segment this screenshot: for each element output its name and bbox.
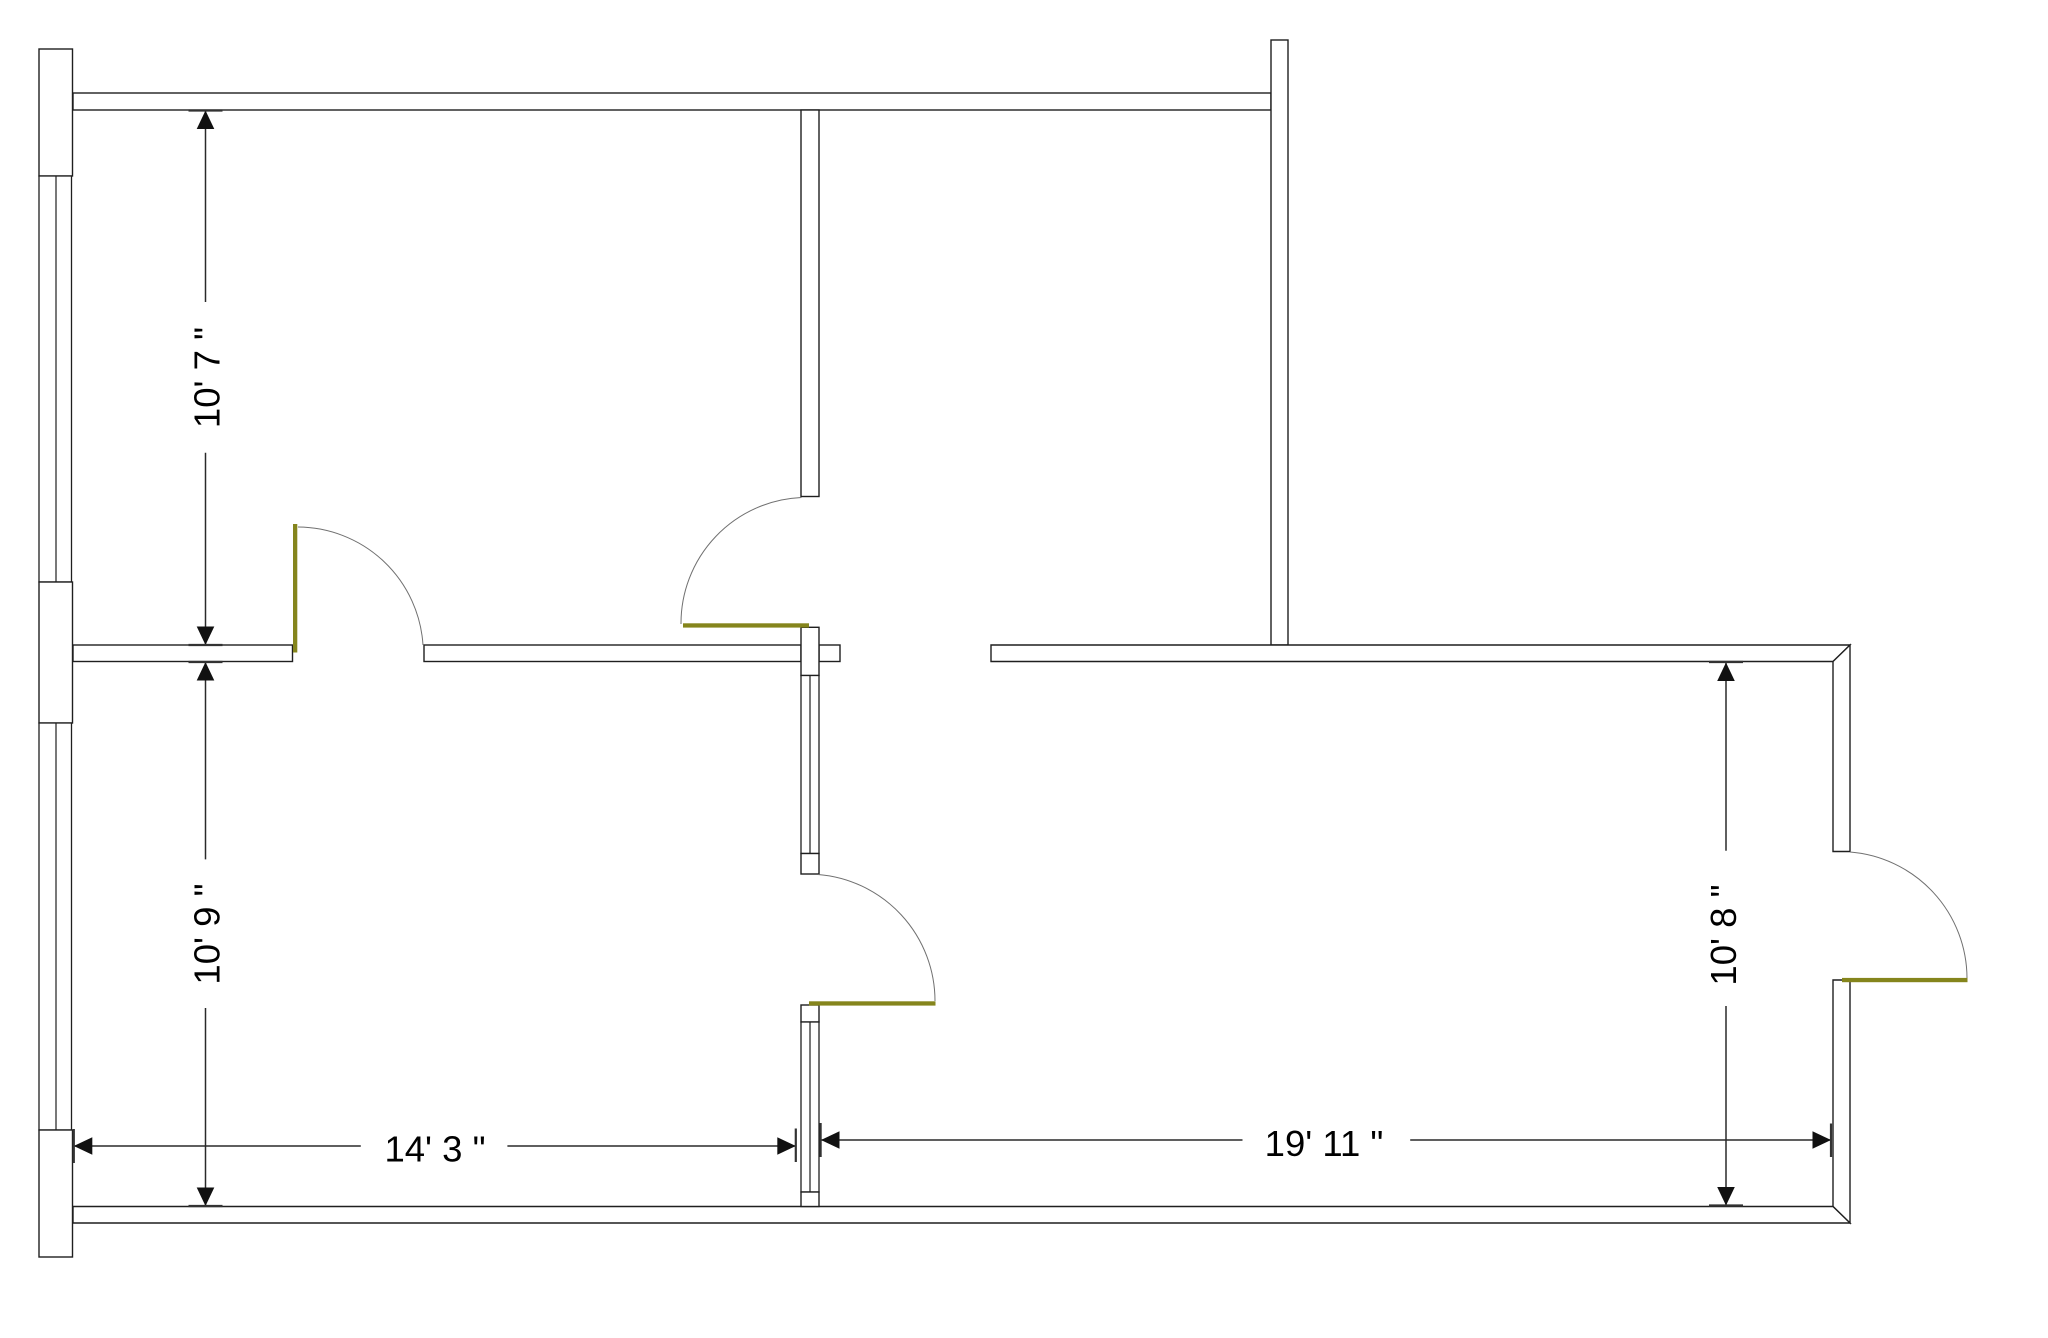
svg-text:19' 11 ": 19' 11 " [1265, 1123, 1384, 1164]
svg-text:10' 8 ": 10' 8 " [1703, 884, 1744, 985]
svg-text:10' 7 ": 10' 7 " [187, 327, 228, 428]
svg-text:14' 3 ": 14' 3 " [384, 1129, 485, 1170]
svg-text:10' 9 ": 10' 9 " [187, 883, 228, 984]
